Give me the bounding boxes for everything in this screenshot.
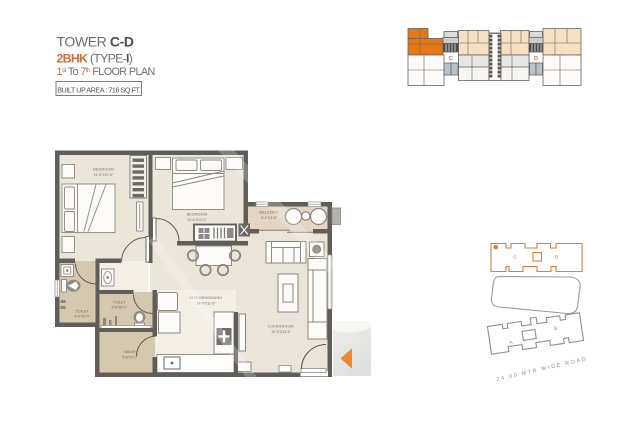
svg-text:5'-6"X4'-0": 5'-6"X4'-0": [122, 356, 138, 360]
svg-text:TOILET: TOILET: [113, 301, 127, 305]
svg-text:BEDROOM: BEDROOM: [187, 213, 207, 217]
svg-text:D: D: [534, 56, 538, 62]
svg-text:4'-0"X6'-0": 4'-0"X6'-0": [74, 315, 90, 319]
svg-text:24.00 MTR WIDE ROAD: 24.00 MTR WIDE ROAD: [496, 356, 588, 383]
svg-text:BEDROOM: BEDROOM: [93, 168, 113, 172]
svg-text:4'-6"X6'-0": 4'-6"X6'-0": [111, 306, 127, 310]
svg-text:BUILT UP AREA : 716 SQ.FT.: BUILT UP AREA : 716 SQ.FT.: [57, 85, 140, 94]
svg-text:11'-6"X10'-6": 11'-6"X10'-6": [94, 173, 114, 177]
svg-text:2BHK (TYPE-I): 2BHK (TYPE-I): [57, 52, 133, 66]
svg-text:LIVINGROOM: LIVINGROOM: [268, 325, 294, 329]
svg-text:D: D: [555, 255, 559, 261]
svg-text:TOILET: TOILET: [76, 310, 90, 314]
svg-text:8'-2"X3'-6": 8'-2"X3'-6": [261, 216, 278, 220]
svg-text:C: C: [513, 255, 517, 261]
svg-text:11'-6"X13'-0": 11'-6"X13'-0": [187, 218, 207, 222]
svg-text:TOWER C-D: TOWER C-D: [57, 33, 134, 49]
svg-text:1st To 7th FLOOR PLAN: 1st To 7th FLOOR PLAN: [57, 66, 155, 78]
svg-text:10'-6"X13'-4": 10'-6"X13'-4": [271, 330, 291, 334]
svg-text:C: C: [449, 56, 453, 62]
svg-text:WASH: WASH: [125, 350, 136, 354]
